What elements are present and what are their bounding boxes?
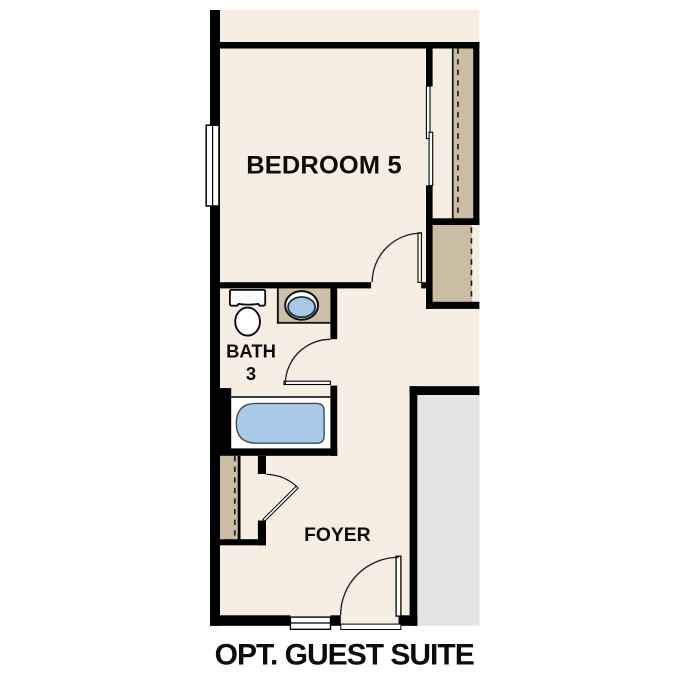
svg-text:BATH: BATH [226, 341, 276, 362]
svg-text:OPT. GUEST SUITE: OPT. GUEST SUITE [215, 638, 474, 671]
svg-text:BEDROOM 5: BEDROOM 5 [246, 152, 402, 180]
svg-text:3: 3 [246, 363, 256, 384]
svg-text:FOYER: FOYER [304, 525, 370, 546]
